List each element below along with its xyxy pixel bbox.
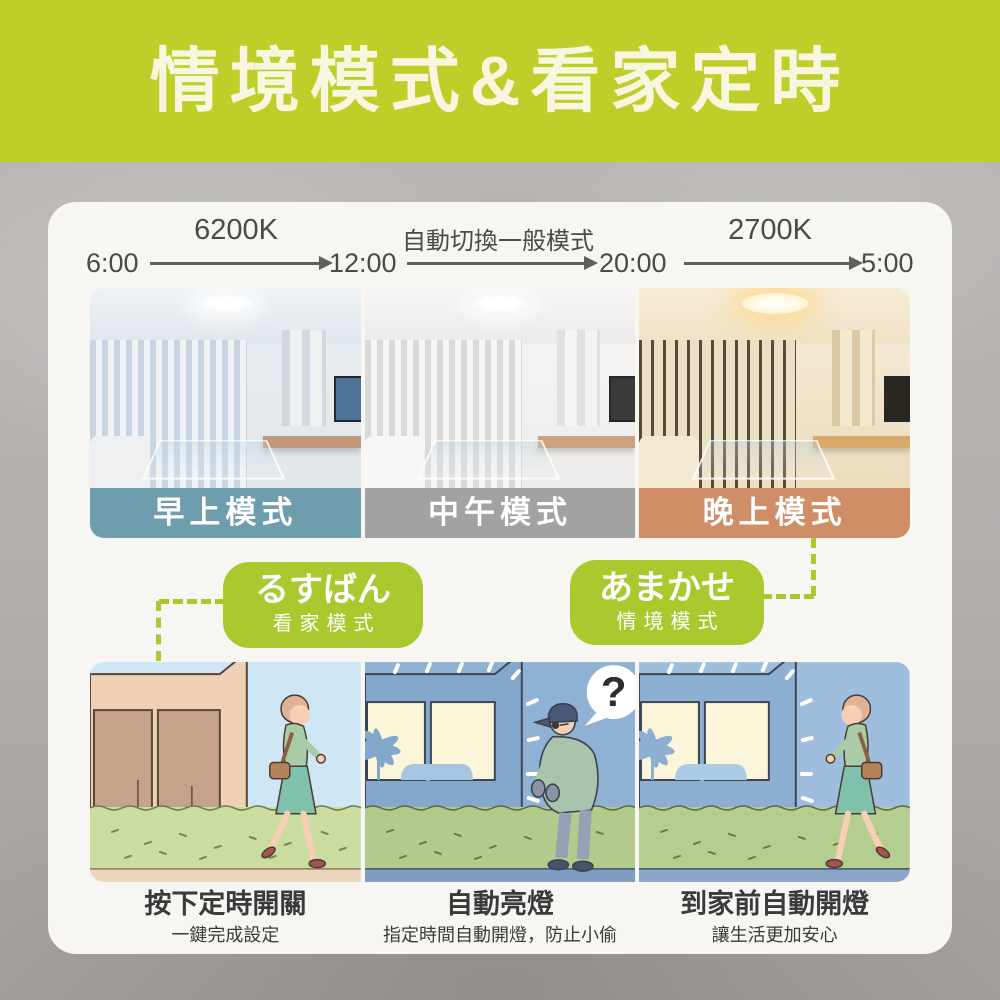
- room-sofa: [90, 436, 150, 488]
- caption-title: 到家前自動開燈: [639, 888, 910, 920]
- tv-icon: [609, 376, 635, 422]
- room-desk: [813, 436, 910, 448]
- mode-photos: 早上模式 中午模式: [90, 288, 910, 538]
- tv-icon: [884, 376, 910, 422]
- room-sofa: [639, 436, 699, 488]
- photo-morning-room: [90, 288, 361, 488]
- connector-dashed-left-vertical: [156, 601, 161, 661]
- infographic: 情境模式&看家定時 6:00 12:00 20:00 5:00 6200K 自動…: [0, 0, 1000, 1000]
- photo-evening-room: [639, 288, 910, 488]
- caption-subtitle: 讓生活更加安心: [639, 923, 910, 947]
- timeline-label-2700k: 2700K: [695, 214, 845, 247]
- timeline-label-auto-switch: 自動切換一般模式: [378, 221, 618, 256]
- caption-title: 自動亮燈: [365, 888, 636, 920]
- bubble-subtitle: 情境模式: [570, 609, 764, 635]
- arrow-right-icon: [150, 262, 320, 265]
- caption-subtitle: 指定時間自動開燈，防止小偷: [365, 923, 636, 947]
- ceiling-light-icon: [192, 293, 258, 314]
- illustration-auto-light: ?: [365, 662, 636, 882]
- bubble-title: あまかせ: [570, 567, 764, 609]
- connector-dashed-right-vertical: [811, 538, 816, 596]
- timeline-time-1: 6:00: [86, 248, 139, 279]
- connector-dashed-left-horizontal: [159, 599, 225, 604]
- mode-label-morning: 早上模式: [90, 488, 361, 538]
- room-glass-table: [691, 440, 835, 479]
- caption-title: 按下定時開關: [90, 888, 361, 920]
- mode-column-noon: 中午模式: [365, 288, 636, 538]
- room-wall-panels: [557, 330, 600, 426]
- mode-column-evening: 晚上模式: [639, 288, 910, 538]
- arrow-right-icon: [407, 262, 585, 265]
- caption-auto-light: 自動亮燈 指定時間自動開燈，防止小偷: [365, 888, 636, 947]
- room-desk: [263, 436, 360, 448]
- illustration-night-thief-scene: ?: [365, 662, 636, 882]
- bubble-rusuban: るすばん 看家模式: [223, 562, 423, 648]
- room-wall-panels: [282, 330, 325, 426]
- connector-dashed-right-horizontal: [762, 594, 814, 599]
- illustration-day-scene: [90, 662, 361, 882]
- page-title: 情境模式&看家定時: [0, 0, 1000, 162]
- room-glass-table: [416, 440, 560, 479]
- illustration-night-return-scene: [639, 662, 910, 882]
- caption-return-home: 到家前自動開燈 讓生活更加安心: [639, 888, 910, 947]
- bubble-title: るすばん: [223, 569, 423, 611]
- mode-column-morning: 早上模式: [90, 288, 361, 538]
- illustration-return-home: [639, 662, 910, 882]
- photo-noon-room: [365, 288, 636, 488]
- caption-timer-press: 按下定時開關 一鍵完成設定: [90, 888, 361, 947]
- question-mark: ?: [601, 668, 627, 715]
- ceiling-light-icon: [467, 293, 533, 314]
- ceiling-light-icon: [742, 293, 808, 314]
- bubble-subtitle: 看家模式: [223, 611, 423, 637]
- illustration-timer-press: [90, 662, 361, 882]
- mode-label-evening: 晚上模式: [639, 488, 910, 538]
- arrow-right-icon: [684, 262, 850, 265]
- room-desk: [538, 436, 635, 448]
- header-banner: 情境模式&看家定時: [0, 0, 1000, 162]
- illustrations: ?: [90, 662, 910, 882]
- tv-icon: [334, 376, 360, 422]
- room-sofa: [365, 436, 425, 488]
- timeline-label-6200k: 6200K: [161, 214, 311, 247]
- caption-subtitle: 一鍵完成設定: [90, 923, 361, 947]
- bubble-amakase: あまかせ 情境模式: [570, 560, 764, 645]
- room-glass-table: [142, 440, 286, 479]
- captions: 按下定時開關 一鍵完成設定 自動亮燈 指定時間自動開燈，防止小偷 到家前自動開燈…: [90, 888, 910, 947]
- room-wall-panels: [832, 330, 875, 426]
- timeline-time-4: 5:00: [861, 248, 914, 279]
- mode-label-noon: 中午模式: [365, 488, 636, 538]
